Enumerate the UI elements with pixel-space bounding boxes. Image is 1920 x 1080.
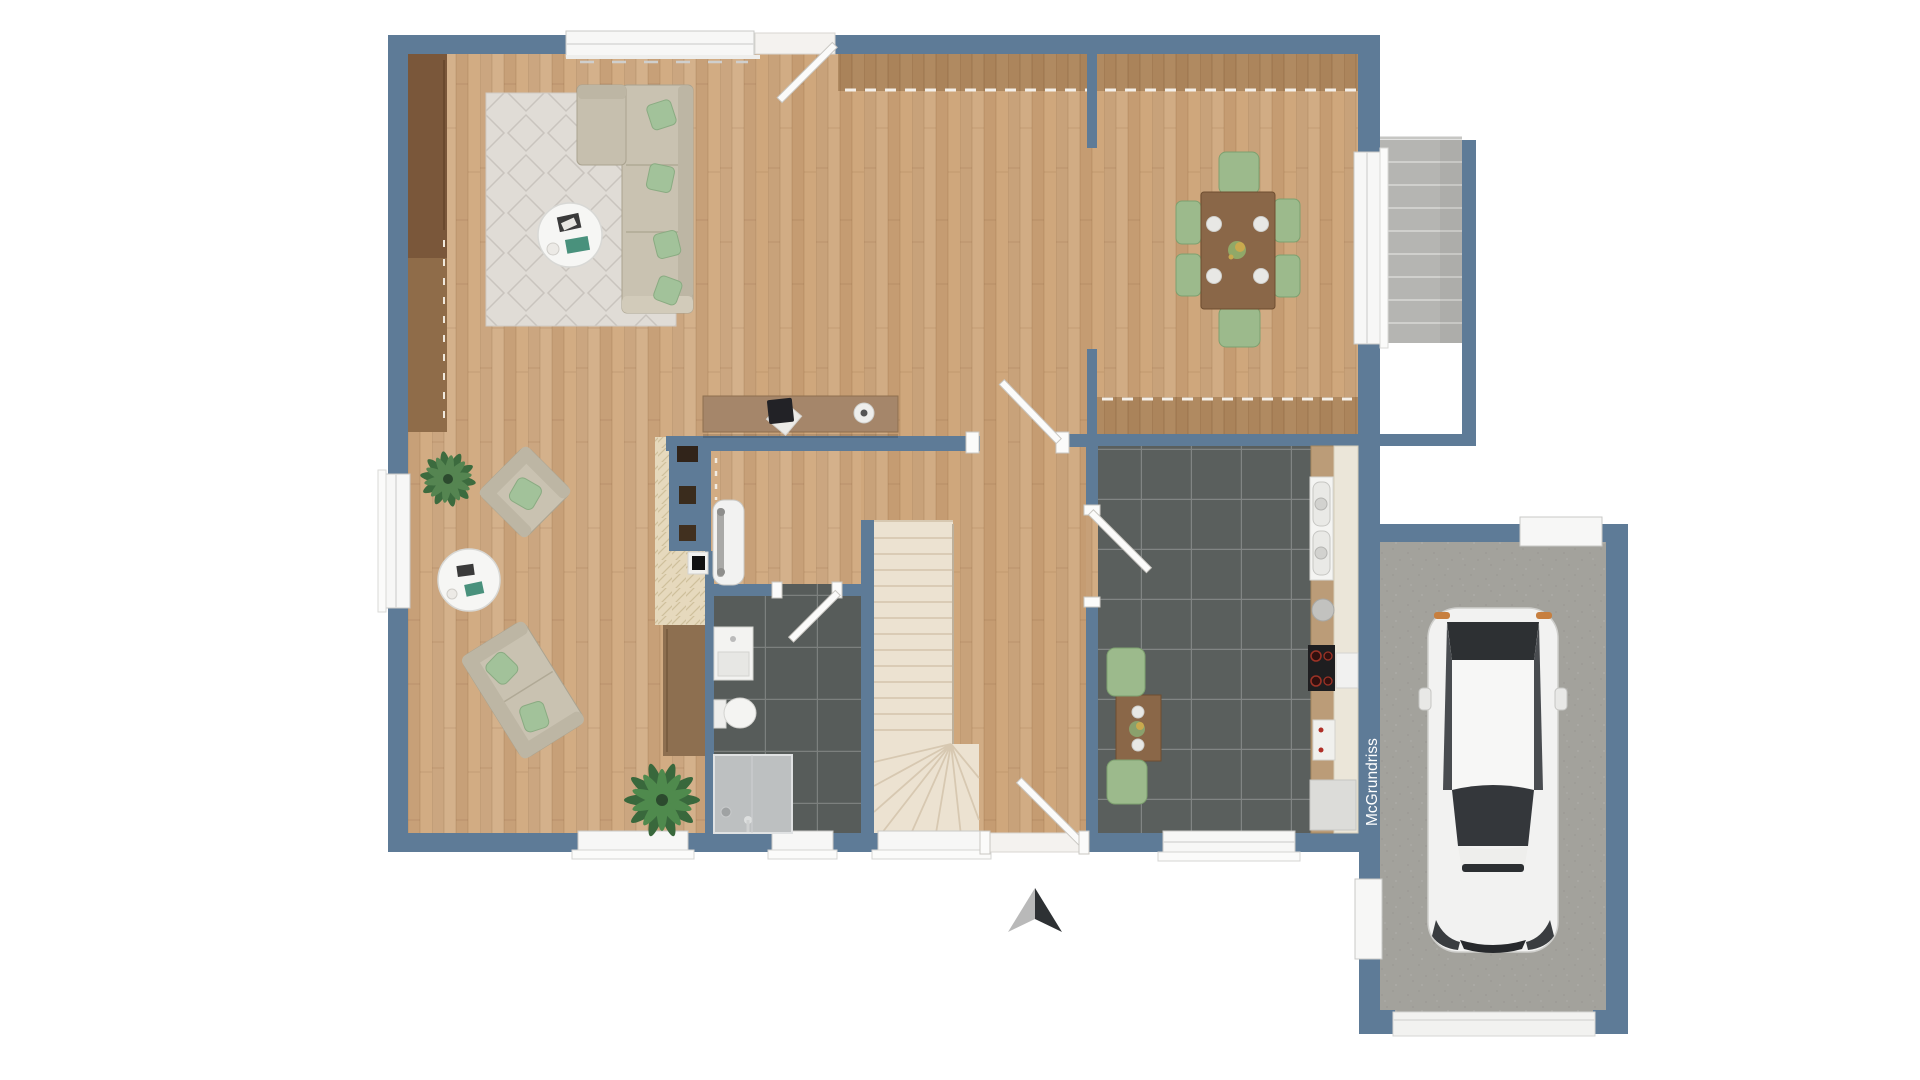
- svg-text:McGrundriss: McGrundriss: [1364, 738, 1381, 826]
